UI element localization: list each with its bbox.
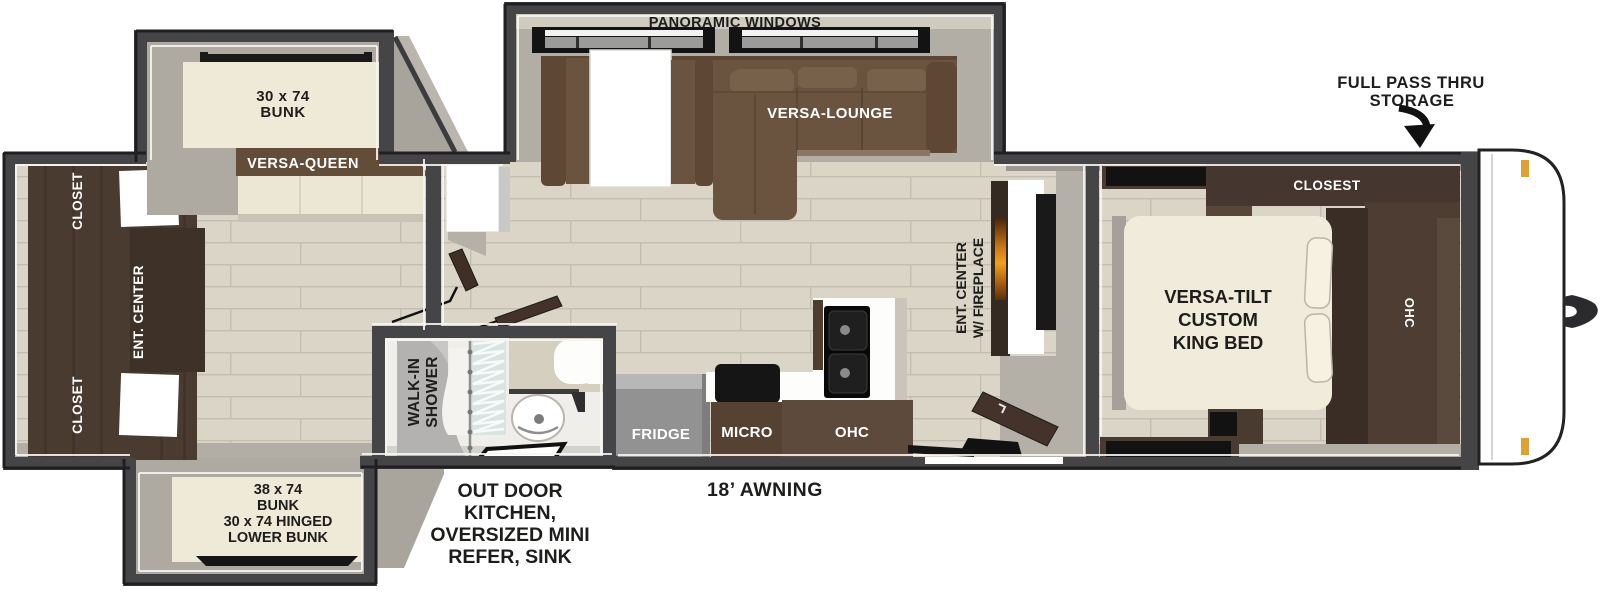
svg-text:MICRO: MICRO [721, 424, 773, 441]
svg-text:W/ FIREPLACE: W/ FIREPLACE [970, 238, 986, 338]
svg-text:38 x 74: 38 x 74 [254, 482, 302, 498]
svg-text:LOWER BUNK: LOWER BUNK [228, 530, 328, 546]
svg-text:CUSTOM: CUSTOM [1178, 309, 1258, 330]
svg-text:WALK-IN: WALK-IN [406, 358, 423, 426]
svg-text:BUNK: BUNK [260, 104, 305, 121]
svg-text:BUNK: BUNK [257, 498, 299, 514]
svg-text:KING BED: KING BED [1173, 332, 1263, 353]
svg-text:VERSA-LOUNGE: VERSA-LOUNGE [767, 105, 893, 122]
svg-text:18’ AWNING: 18’ AWNING [707, 479, 823, 501]
svg-text:REFER, SINK: REFER, SINK [448, 546, 572, 568]
svg-text:CLOSET: CLOSET [70, 376, 85, 434]
svg-text:STORAGE: STORAGE [1370, 92, 1455, 110]
svg-text:CLOSEST: CLOSEST [1293, 178, 1361, 193]
svg-text:SHOWER: SHOWER [424, 356, 441, 428]
svg-text:ENT. CENTER: ENT. CENTER [953, 242, 969, 334]
svg-text:OHC: OHC [835, 424, 869, 441]
svg-text:30 x 74 HINGED: 30 x 74 HINGED [224, 514, 333, 530]
svg-text:OVERSIZED MINI: OVERSIZED MINI [430, 524, 589, 546]
svg-text:FRIDGE: FRIDGE [632, 426, 690, 443]
svg-text:OUT DOOR: OUT DOOR [457, 480, 562, 502]
svg-text:FULL PASS THRU: FULL PASS THRU [1337, 74, 1485, 92]
svg-text:CLOSET: CLOSET [70, 172, 85, 230]
svg-text:KITCHEN,: KITCHEN, [464, 502, 556, 524]
svg-text:OHC: OHC [1402, 298, 1417, 329]
svg-text:30 x 74: 30 x 74 [256, 88, 310, 105]
svg-text:VERSA-TILT: VERSA-TILT [1164, 286, 1272, 307]
svg-text:ENT. CENTER: ENT. CENTER [131, 265, 146, 359]
svg-text:VERSA-QUEEN: VERSA-QUEEN [247, 156, 359, 172]
